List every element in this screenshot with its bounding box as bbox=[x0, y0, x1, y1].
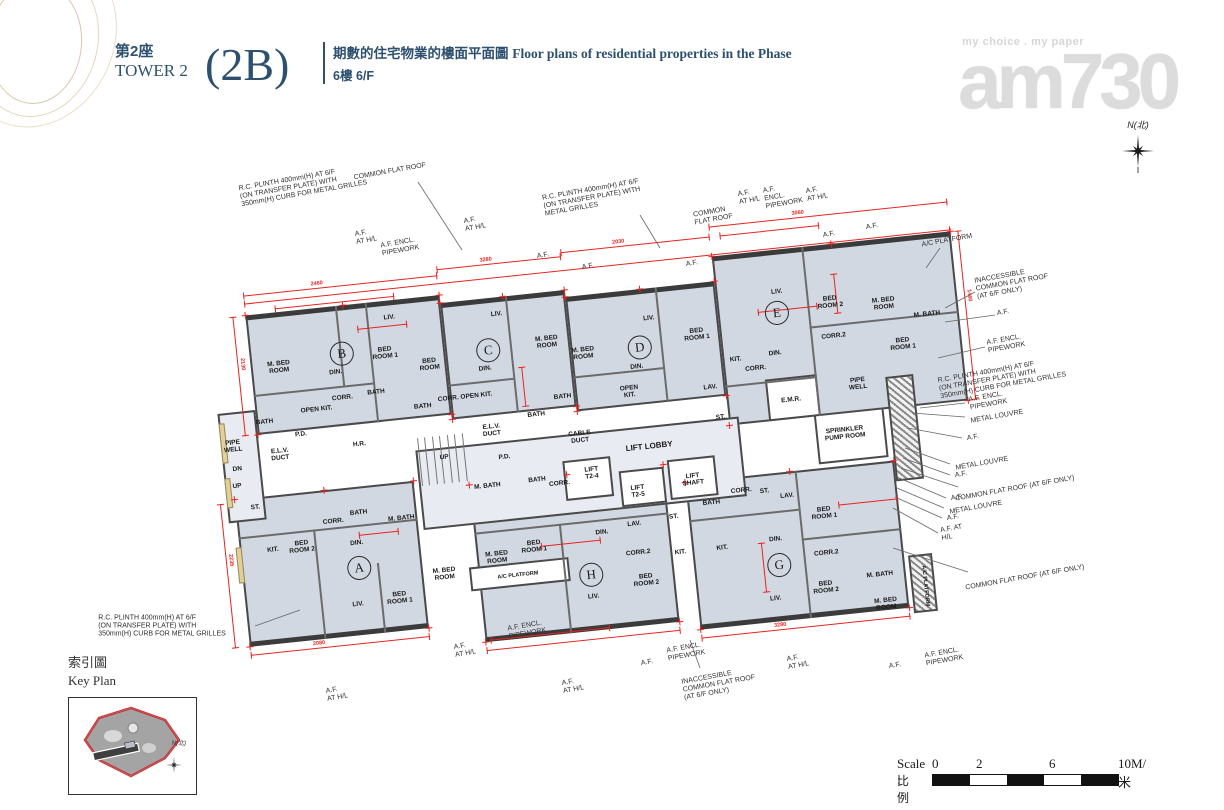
room-label: DIN. bbox=[768, 349, 782, 357]
room-label: ST. bbox=[759, 487, 769, 495]
room-label: LAV. bbox=[780, 492, 794, 501]
room-label: M. BED ROOM bbox=[432, 566, 456, 583]
room-label: DN bbox=[232, 465, 242, 473]
room-label: M. BED ROOM bbox=[485, 549, 509, 566]
dimension-cross bbox=[708, 253, 716, 261]
room-label: BED ROOM 2 bbox=[633, 572, 660, 589]
dimension-cross bbox=[573, 408, 581, 416]
plan-annotation: A.F. AT H/L bbox=[786, 652, 810, 671]
room-label: UP bbox=[439, 453, 449, 461]
dimension-cross bbox=[827, 240, 835, 248]
dimension-value: 2130 bbox=[239, 358, 246, 371]
plan-annotation: R.C. PLINTH 400mm(H) AT 6/F (ON TRANSFER… bbox=[238, 163, 368, 208]
room-label: BED ROOM 1 bbox=[521, 538, 548, 555]
scale-tick: 2 bbox=[976, 756, 983, 772]
room-label: M. BED ROOM bbox=[267, 359, 291, 376]
am730-wordmark: am730 bbox=[958, 48, 1176, 114]
room-label: BED ROOM 1 bbox=[811, 505, 838, 522]
room-label: H.R. bbox=[353, 440, 367, 448]
plan-annotation: A.F. AT H/L bbox=[561, 676, 585, 695]
dimension-cross bbox=[786, 468, 794, 476]
dimension-cross bbox=[561, 293, 569, 301]
plan-annotation: A.F. ENCL. PIPEWORK bbox=[986, 333, 1026, 355]
room-label: LIV. bbox=[352, 600, 364, 608]
plan-annotation: A.F. AT H/L bbox=[325, 684, 349, 703]
room-label: M. BED ROOM bbox=[871, 295, 895, 312]
description-en: Floor plans of residential properties in… bbox=[512, 46, 791, 61]
dimension-cross bbox=[246, 643, 254, 651]
room-label: DIN. bbox=[329, 368, 343, 376]
dimension-value: 2235 bbox=[227, 554, 234, 567]
room-label: ST. bbox=[250, 503, 260, 511]
room-label: LIV. bbox=[491, 310, 503, 318]
scale-tick: 0 bbox=[932, 756, 939, 772]
room-label: DIN. bbox=[595, 528, 609, 536]
room-label: ST. bbox=[715, 413, 725, 421]
dimension-cross bbox=[425, 624, 433, 632]
room-label: DIN. bbox=[630, 363, 644, 371]
room-label: KIT. bbox=[267, 546, 279, 554]
dimension-cross bbox=[722, 392, 730, 400]
plan-annotation: R.C. PLINTH 400mm(H) AT 6/F (ON TRANSFER… bbox=[98, 614, 226, 637]
scale-bar-segment bbox=[970, 775, 1007, 785]
dimension-cross bbox=[726, 422, 734, 430]
room-label: CABLE DUCT bbox=[568, 429, 592, 446]
room-label: LIFT T2-5 bbox=[630, 484, 645, 500]
floor-plan-drawing: 246032802030306021301460223520803280PIPE… bbox=[208, 170, 1010, 687]
room-label: ST. bbox=[669, 513, 679, 521]
room-label: OPEN KIT. bbox=[619, 384, 639, 400]
room-label: LIFT T2-4 bbox=[584, 465, 599, 481]
dimension-cross bbox=[636, 285, 644, 293]
room-label: KIT. bbox=[674, 548, 686, 556]
key-plan-map: N(北) bbox=[68, 697, 197, 795]
tower-code: (2B) bbox=[205, 38, 289, 91]
floor-label-zh: 6樓 bbox=[333, 69, 352, 83]
dimension-cross bbox=[410, 477, 418, 485]
scale-bar-segment bbox=[933, 775, 970, 785]
room-label: PIPE WELL bbox=[848, 376, 868, 392]
scale-tick: 6 bbox=[1049, 756, 1056, 772]
key-plan-title-en: Key Plan bbox=[68, 673, 197, 689]
dimension-cross bbox=[697, 626, 705, 634]
plan-annotation: A.F. bbox=[888, 661, 901, 671]
room-label: LIV. bbox=[383, 313, 395, 321]
dimension-line bbox=[720, 225, 820, 236]
room-label: LIV. bbox=[588, 593, 600, 601]
room-label: BED ROOM bbox=[419, 356, 441, 372]
dimension-value: 1460 bbox=[966, 289, 973, 302]
dimension-cross bbox=[947, 228, 955, 236]
room-label: P.D. bbox=[295, 430, 307, 438]
plan-annotation: INACCESSIBLE COMMON FLAT ROOF (AT 6/F ON… bbox=[974, 265, 1050, 301]
dimension-cross bbox=[890, 457, 898, 465]
room-label: BED ROOM 1 bbox=[889, 335, 916, 352]
tower-title-en: TOWER 2 bbox=[115, 61, 188, 81]
title-block: 第2座 TOWER 2 bbox=[115, 40, 188, 81]
room-label: UP bbox=[232, 482, 242, 490]
scale-bar-segment bbox=[1007, 775, 1044, 785]
dimension-cross bbox=[710, 277, 718, 285]
key-plan: 索引圖 Key Plan N(北) bbox=[68, 652, 197, 795]
dimension-value: 2460 bbox=[310, 280, 323, 287]
key-plan-north-label: N(北) bbox=[172, 738, 186, 747]
dimension-cross bbox=[482, 638, 490, 646]
plan-annotation: A.F. bbox=[640, 658, 653, 668]
dimension-value: 2080 bbox=[313, 640, 326, 647]
room-label: BED ROOM 1 bbox=[683, 326, 710, 343]
room-label: KIT. bbox=[716, 544, 728, 552]
dimension-cross bbox=[231, 496, 239, 504]
floor-label-en: 6/F bbox=[356, 69, 374, 83]
room-label: BED ROOM 1 bbox=[371, 345, 398, 362]
dimension-cross bbox=[906, 604, 914, 612]
room-label: P.D. bbox=[498, 453, 510, 461]
dimension-cross bbox=[320, 486, 328, 494]
plan-annotation: A.F. ENCL. PIPEWORK bbox=[924, 646, 964, 668]
room-label: LIFT SHAFT bbox=[681, 471, 704, 487]
header-divider bbox=[323, 42, 325, 84]
north-label: N(北) bbox=[1118, 118, 1158, 131]
dimension-cross bbox=[254, 431, 262, 439]
room-label: DIN. bbox=[350, 539, 364, 547]
room-label: E.L.V. DUCT bbox=[482, 422, 501, 438]
plan-annotation: A.F. bbox=[996, 308, 1009, 318]
room-label: PIPE WELL bbox=[223, 438, 243, 454]
dimension-cross bbox=[435, 291, 443, 299]
dimension-value: 3280 bbox=[479, 256, 492, 263]
north-indicator: N(北) bbox=[1118, 118, 1158, 180]
room-label: M. BED ROOM bbox=[571, 345, 595, 362]
description-zh: 期數的住宅物業的樓面平面圖 bbox=[333, 46, 509, 61]
key-plan-title-zh: 索引圖 bbox=[68, 652, 197, 671]
scale-bar-segment bbox=[1044, 775, 1081, 785]
room-label: M. BED ROOM bbox=[874, 596, 898, 613]
room-label: E.L.V. DUCT bbox=[270, 447, 289, 463]
room-label: LIV. bbox=[770, 594, 782, 602]
room-label: BED ROOM 2 bbox=[812, 579, 839, 596]
tower-title-zh: 第2座 bbox=[115, 40, 188, 61]
room-label: BATH bbox=[527, 410, 545, 419]
dimension-cross bbox=[659, 461, 667, 469]
scale-bar-graphic bbox=[932, 774, 1119, 786]
floorplan-page: 第2座 TOWER 2 (2B) 期數的住宅物業的樓面平面圖 Floor pla… bbox=[0, 0, 1224, 810]
room-label: LAV. bbox=[627, 520, 641, 529]
room-label: DIN. bbox=[769, 535, 783, 543]
room-label: M. BED ROOM bbox=[535, 334, 559, 351]
dimension-value: 2030 bbox=[612, 239, 625, 246]
plan-annotation: INACCESSIBLE COMMON FLAT ROOF (AT 6/F ON… bbox=[681, 666, 757, 702]
plan-annotation: COMMON FLAT ROOF bbox=[353, 162, 426, 182]
dimension-cross bbox=[448, 416, 456, 424]
room-label: DIN. bbox=[478, 365, 492, 373]
scale-tick: 10M/米 bbox=[1118, 756, 1146, 791]
room-label: KIT. bbox=[729, 355, 741, 363]
dimension-value: 3280 bbox=[774, 622, 787, 629]
dimension-value: 3060 bbox=[791, 210, 804, 217]
room-label: BED ROOM 2 bbox=[817, 294, 844, 311]
dimension-cross bbox=[338, 301, 346, 309]
room-label: LIV. bbox=[643, 314, 655, 322]
room-label: BED ROOM 1 bbox=[386, 589, 413, 606]
scale-label-zh: 比例 : bbox=[897, 772, 909, 810]
room-label: LAV. bbox=[703, 383, 717, 392]
compass-star-icon bbox=[1118, 131, 1158, 175]
dimension-line: 2030 bbox=[560, 237, 709, 254]
plan-description: 期數的住宅物業的樓面平面圖 Floor plans of residential… bbox=[333, 42, 792, 84]
dimension-cross bbox=[436, 299, 444, 307]
room-label: BED ROOM 2 bbox=[288, 538, 315, 555]
dimension-cross bbox=[676, 618, 684, 626]
dimension-cross bbox=[562, 471, 570, 479]
dimension-cross bbox=[465, 481, 473, 489]
unit-outline bbox=[712, 231, 968, 425]
dimension-cross bbox=[241, 312, 249, 320]
am730-logo: my choice . my paper am730 bbox=[958, 36, 1176, 114]
scale-bar-segment bbox=[1081, 775, 1118, 785]
plan-annotation: A.F. ENCL. PIPEWORK bbox=[666, 641, 706, 663]
room-label: LIV. bbox=[771, 288, 783, 296]
dimension-cross bbox=[498, 293, 506, 301]
